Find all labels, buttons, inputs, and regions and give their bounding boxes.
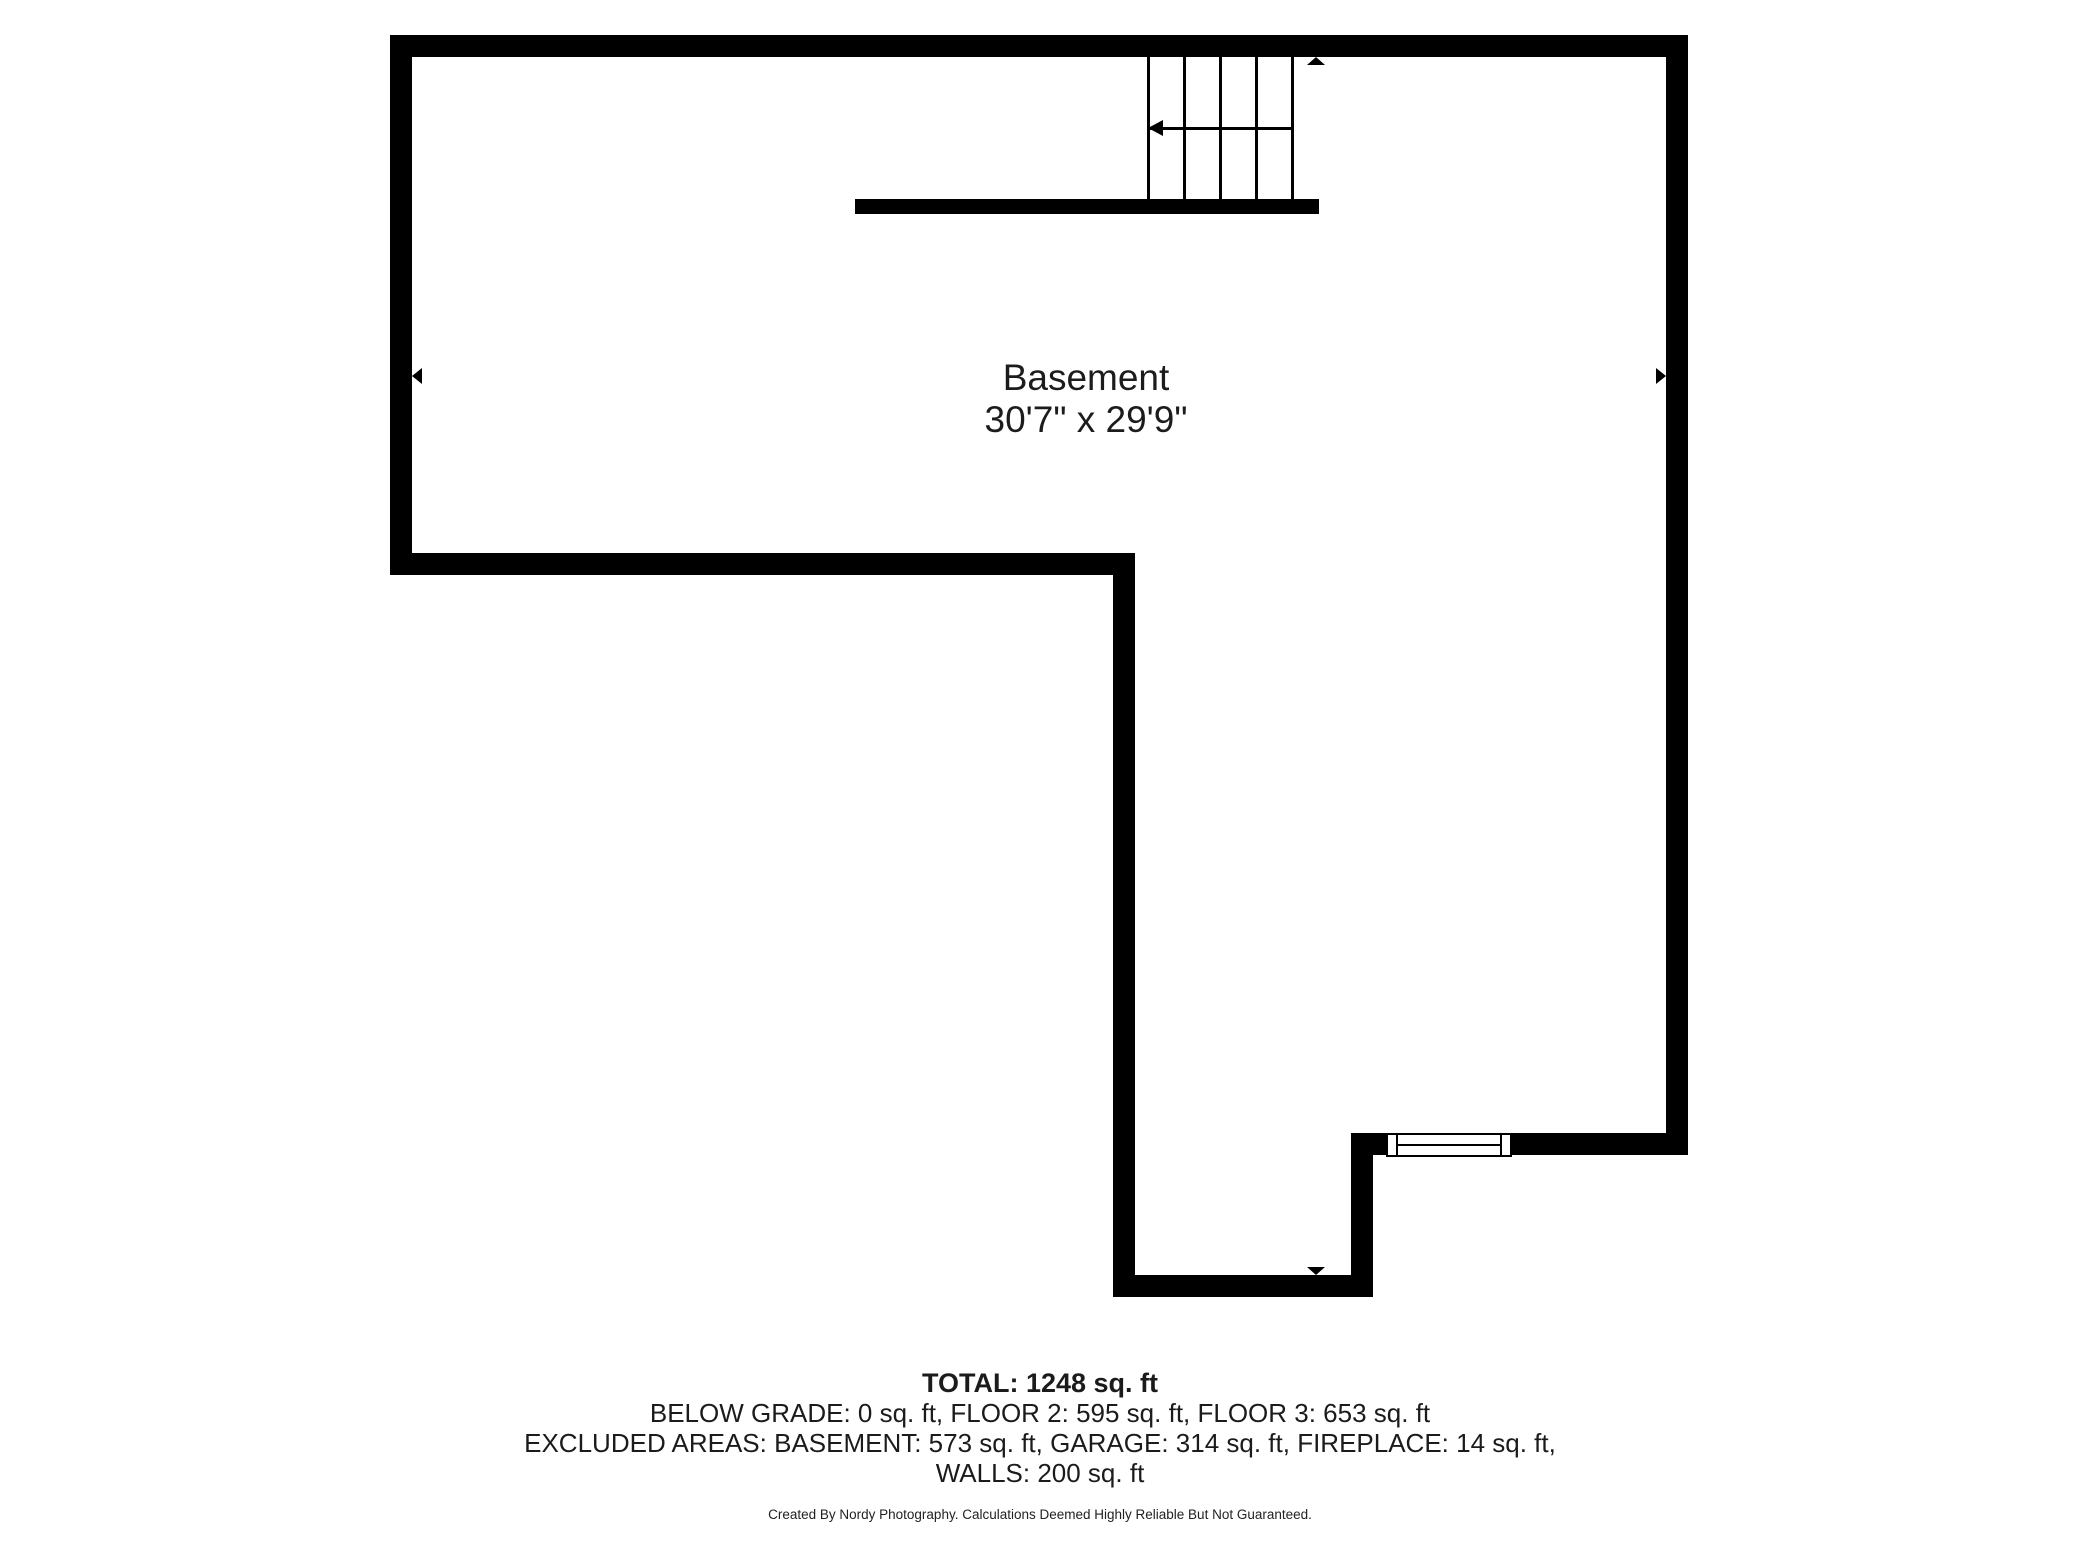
summary-total: TOTAL: 1248 sq. ft bbox=[340, 1368, 1740, 1398]
dimension-arrow-left-icon bbox=[412, 368, 422, 384]
summary-walls: WALLS: 200 sq. ft bbox=[340, 1458, 1740, 1488]
summary-below-grade: BELOW GRADE: 0 sq. ft, FLOOR 2: 595 sq. … bbox=[340, 1398, 1740, 1428]
wall-top bbox=[390, 35, 1688, 57]
wall-corridor-bottom bbox=[1113, 1275, 1373, 1297]
area-summary: TOTAL: 1248 sq. ft BELOW GRADE: 0 sq. ft… bbox=[340, 1368, 1740, 1488]
wall-window-right-stub bbox=[1512, 1133, 1688, 1155]
stair-landing-wall bbox=[855, 199, 1319, 214]
floor-plan: Basement 30'7" x 29'9" TOTAL: 1248 sq. f… bbox=[0, 0, 2080, 1560]
stair-direction-arrowhead-icon bbox=[1148, 120, 1163, 136]
window bbox=[1386, 1133, 1512, 1157]
wall-left bbox=[390, 35, 412, 575]
footer-credit: Created By Nordy Photography. Calculatio… bbox=[340, 1506, 1740, 1523]
window-mid-line bbox=[1398, 1144, 1500, 1146]
wall-corridor-right bbox=[1351, 1133, 1373, 1297]
wall-room-bottom bbox=[390, 553, 1135, 575]
dimension-arrow-right-icon bbox=[1656, 368, 1666, 384]
summary-excluded-areas: EXCLUDED AREAS: BASEMENT: 573 sq. ft, GA… bbox=[340, 1428, 1740, 1458]
room-label: Basement bbox=[886, 356, 1286, 400]
window-cap-right bbox=[1500, 1135, 1510, 1155]
wall-window-left-stub bbox=[1351, 1133, 1386, 1155]
window-cap-left bbox=[1388, 1135, 1398, 1155]
stair-direction-line bbox=[1148, 127, 1292, 130]
wall-right bbox=[1666, 35, 1688, 1155]
wall-corridor-left bbox=[1113, 553, 1135, 1297]
arrow-down-icon bbox=[1307, 1267, 1325, 1275]
arrow-up-icon bbox=[1307, 57, 1325, 65]
room-dimensions: 30'7" x 29'9" bbox=[886, 398, 1286, 442]
